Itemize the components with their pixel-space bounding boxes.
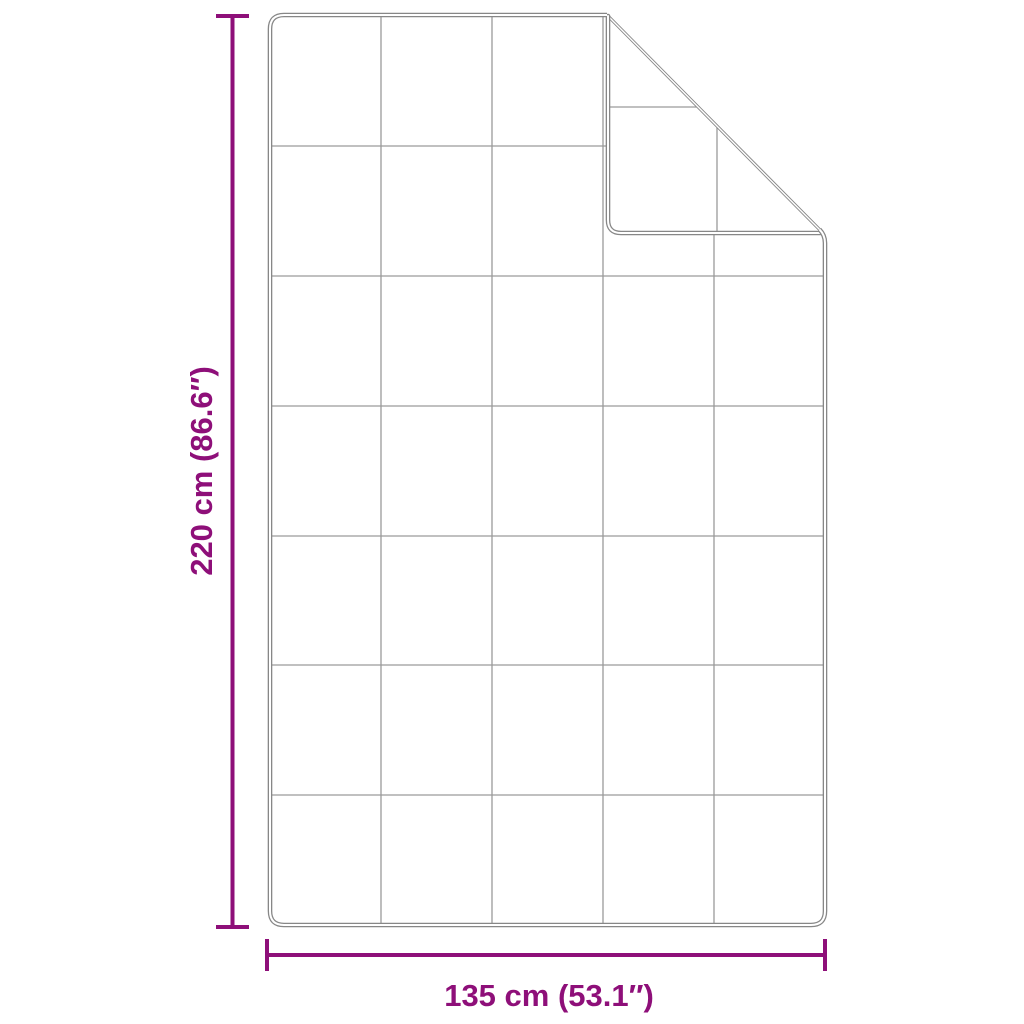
- height-dimension-line: [216, 16, 249, 927]
- width-dimension: [267, 939, 825, 971]
- height-dimension: [216, 16, 249, 927]
- height-label: 220 cm (86.6″): [184, 366, 219, 576]
- diagram-canvas: 220 cm (86.6″) 135 cm (53.1″): [0, 0, 1024, 1024]
- width-dimension-line: [267, 939, 825, 971]
- quilt-grid-rows: [271, 146, 824, 795]
- width-label: 135 cm (53.1″): [444, 978, 654, 1013]
- blanket-dimension-diagram: 220 cm (86.6″) 135 cm (53.1″): [0, 0, 1024, 1024]
